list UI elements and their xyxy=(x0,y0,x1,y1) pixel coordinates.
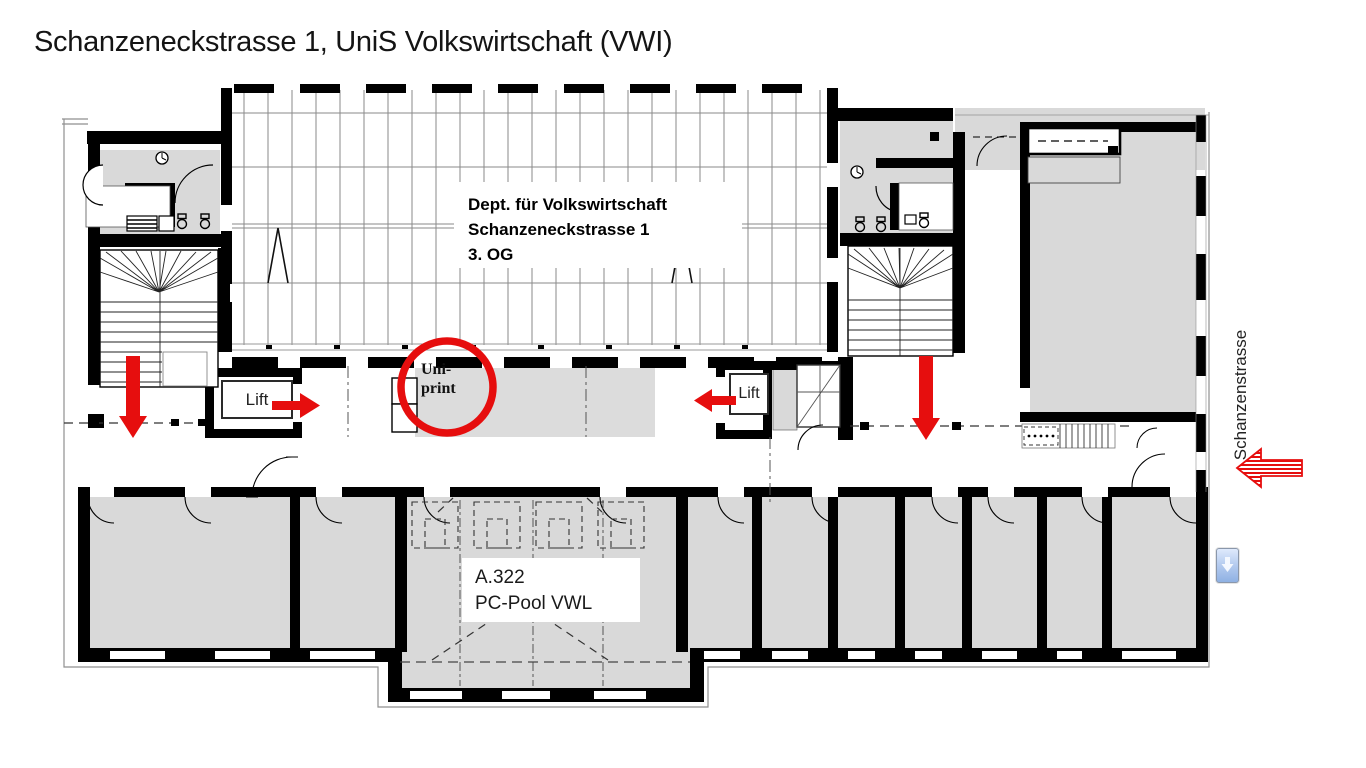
red-down-arrow-right-icon xyxy=(912,356,940,440)
lift-left-label: Lift xyxy=(222,381,292,419)
scroll-down-arrow-icon xyxy=(1217,549,1238,582)
floor-plan-page: Schanzeneckstrasse 1, UniS Volkswirtscha… xyxy=(0,0,1366,768)
uniprint-line-2: print xyxy=(421,379,456,398)
right-stairwell xyxy=(848,246,953,356)
pc-pool-line-2: PC-Pool VWL xyxy=(475,591,640,617)
lift-right-label: Lift xyxy=(729,375,769,413)
scroll-down-button[interactable] xyxy=(1216,548,1239,583)
floor-plan-drawing xyxy=(0,0,1366,768)
pc-pool-label: A.322 PC-Pool VWL xyxy=(462,558,640,622)
department-line-1: Dept. für Volkswirtschaft xyxy=(468,192,742,217)
page-title: Schanzeneckstrasse 1, UniS Volkswirtscha… xyxy=(34,26,672,59)
street-name-label: Schanzenstrasse xyxy=(1231,330,1251,460)
uniprint-label: Uni- print xyxy=(421,360,456,398)
department-line-2: Schanzeneckstrasse 1 xyxy=(468,217,742,242)
pc-pool-line-1: A.322 xyxy=(475,565,640,591)
uniprint-line-1: Uni- xyxy=(421,360,456,379)
department-line-3: 3. OG xyxy=(468,242,742,267)
department-label: Dept. für Volkswirtschaft Schanzeneckstr… xyxy=(454,182,742,268)
left-stairwell xyxy=(100,250,218,387)
